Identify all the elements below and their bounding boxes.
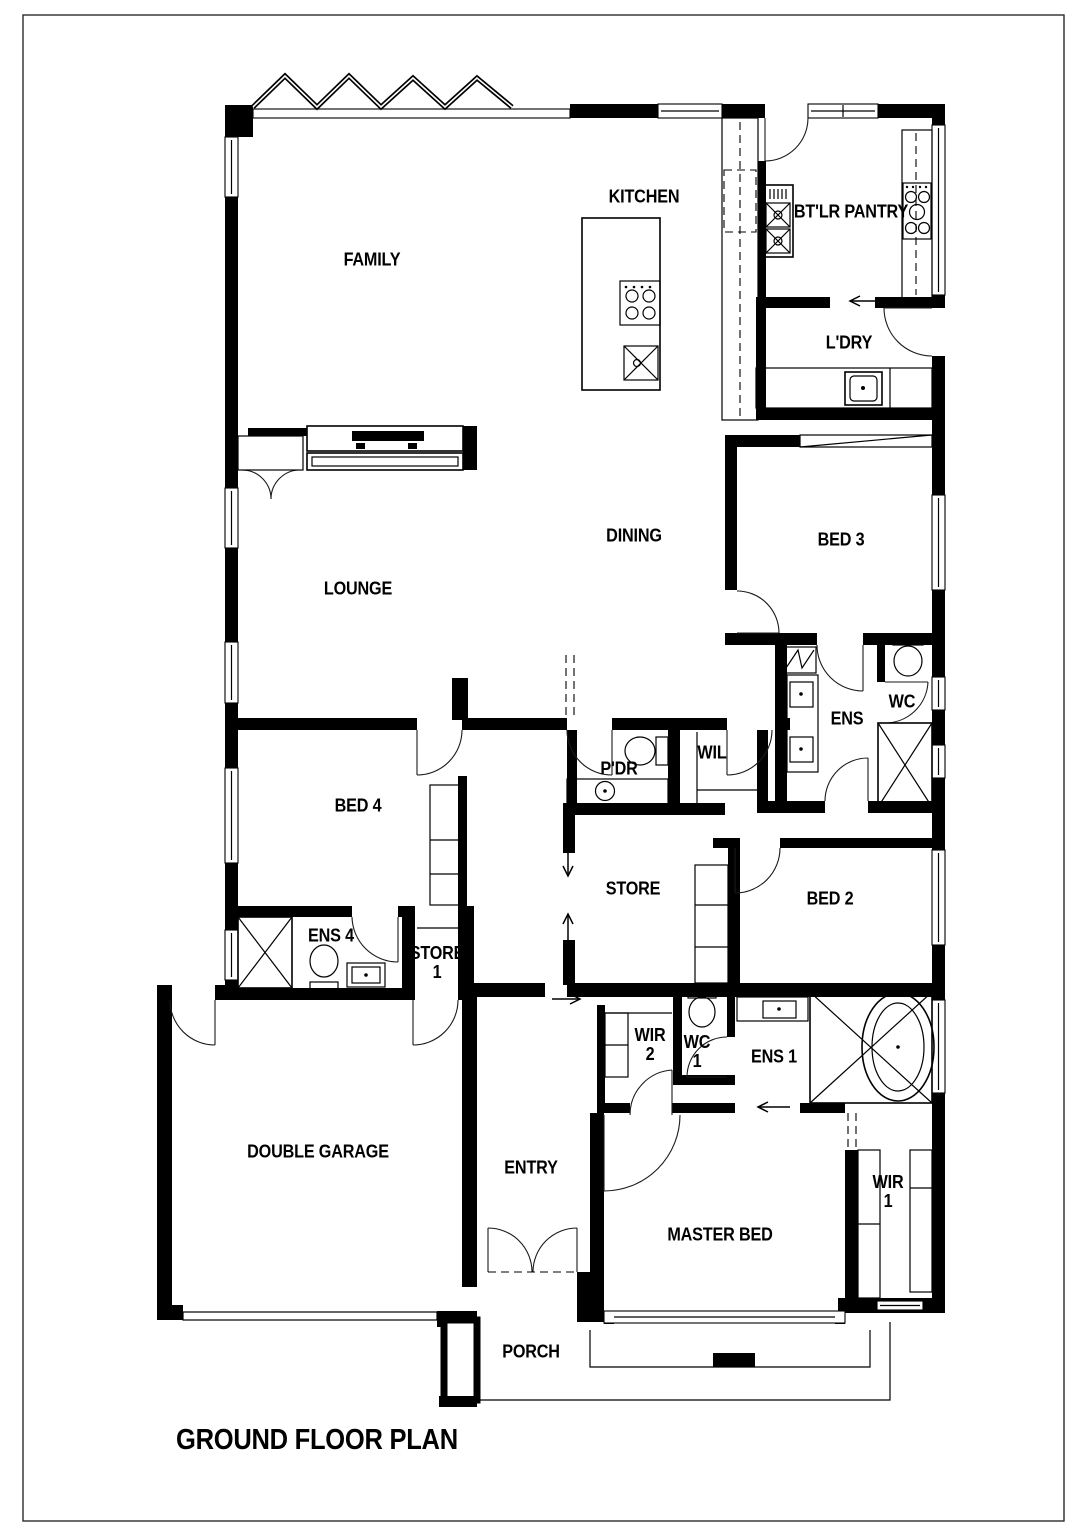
- room-label-store1: STORE 1: [410, 944, 465, 982]
- room-label-store: STORE: [606, 880, 661, 899]
- door-pantry-top: [765, 118, 808, 161]
- ens4-shower-icon: [238, 917, 292, 988]
- room-label-wc1: WC 1: [684, 1033, 711, 1071]
- room-label-wc1-line1: WC: [684, 1033, 711, 1052]
- door-nook-double: [242, 470, 300, 499]
- linen-cupboard: [782, 647, 816, 673]
- room-label-bed2: BED 2: [807, 890, 854, 909]
- room-label-store1-line1: STORE: [410, 944, 465, 963]
- room-label-dining: DINING: [606, 527, 662, 546]
- door-garage-side: [170, 1000, 215, 1045]
- window-left-lounge-1: [225, 488, 238, 548]
- room-label-family: FAMILY: [344, 251, 401, 270]
- room-label-lounge: LOUNGE: [324, 580, 392, 599]
- room-label-double-garage: DOUBLE GARAGE: [247, 1143, 389, 1162]
- room-label-wir2-line1: WIR: [635, 1026, 666, 1045]
- window-right-wc: [932, 677, 945, 710]
- laundry-fixtures: [756, 368, 932, 408]
- room-label-wir1-line2: 1: [873, 1192, 904, 1211]
- floor-plan-page: FAMILY KITCHEN BT'LR PANTRY L'DRY DINING…: [0, 0, 1087, 1536]
- window-left-lounge-2: [225, 642, 238, 703]
- bath-icon: [862, 993, 934, 1101]
- door-bed4: [417, 730, 462, 775]
- bed4-robe: [430, 785, 460, 905]
- door-wir2: [630, 1070, 672, 1115]
- room-label-porch: PORCH: [502, 1343, 560, 1362]
- room-label-ens4: ENS 4: [308, 927, 354, 946]
- floor-plan-svg: [0, 0, 1087, 1536]
- door-entry-double: [488, 1228, 577, 1272]
- room-label-ens1: ENS 1: [751, 1048, 797, 1067]
- room-label-bed4: BED 4: [335, 797, 382, 816]
- ens-shower-icon: [878, 723, 932, 807]
- window-right-ens: [932, 745, 945, 778]
- page-border: [23, 15, 1064, 1521]
- bifold-door-icon: [253, 76, 570, 118]
- window-top-kitchen: [658, 104, 722, 118]
- door-bed2: [735, 848, 780, 893]
- room-label-wc1-line2: 1: [684, 1052, 711, 1071]
- ens4-toilet-icon: [310, 945, 338, 991]
- door-ens4: [352, 917, 398, 962]
- arrow-ens1-left-icon: [758, 1102, 790, 1112]
- window-master-bay: [604, 1311, 845, 1323]
- room-label-powder: P'DR: [600, 760, 637, 779]
- bed2-robe: [695, 865, 728, 983]
- window-right-bed3: [932, 495, 945, 590]
- kitchen-island: [582, 118, 758, 420]
- room-label-store1-line2: 1: [410, 963, 465, 982]
- window-wir1: [877, 1301, 923, 1310]
- door-garage-internal: [413, 1000, 458, 1045]
- plan-title: GROUND FLOOR PLAN: [176, 1424, 458, 1457]
- window-top-pantry: [808, 104, 878, 118]
- room-label-entry: ENTRY: [504, 1159, 557, 1178]
- room-label-butlers-pantry: BT'LR PANTRY: [794, 203, 908, 222]
- door-ens-top: [817, 645, 863, 691]
- ens1-shower-icon: [810, 992, 932, 1103]
- room-label-wir2: WIR 2: [635, 1026, 666, 1064]
- door-master-bed: [604, 1115, 680, 1191]
- ens4-vanity-icon: [347, 963, 385, 987]
- window-left-ens4: [225, 930, 238, 980]
- room-label-wir2-line2: 2: [635, 1045, 666, 1064]
- wc1-ens1-fixtures: [688, 990, 934, 1103]
- room-label-kitchen: KITCHEN: [609, 188, 680, 207]
- window-right-bed2: [932, 850, 945, 945]
- sink-icon: [624, 346, 658, 380]
- room-label-wil: WIL: [697, 744, 726, 763]
- room-label-master-bed: MASTER BED: [667, 1226, 772, 1245]
- room-label-wc: WC: [889, 693, 916, 712]
- door-bed3: [737, 591, 779, 633]
- cooktop-icon: [620, 281, 660, 325]
- room-label-bed3: BED 3: [818, 531, 865, 550]
- laundry-sink-icon: [845, 372, 882, 405]
- room-label-wir1-line1: WIR: [873, 1173, 904, 1192]
- oven-tower-icon: [763, 185, 793, 257]
- room-label-laundry: L'DRY: [826, 334, 872, 353]
- window-left-bed4: [225, 768, 238, 863]
- arrow-store-up-icon: [563, 914, 573, 944]
- room-label-wir1: WIR 1: [873, 1173, 904, 1211]
- window-left-family: [225, 137, 238, 197]
- door-laundry-external: [884, 308, 932, 356]
- bed3-robe: [800, 435, 932, 447]
- window-right-pantry: [932, 125, 945, 295]
- door-ens-bottom: [825, 758, 868, 801]
- room-label-ens: ENS: [831, 710, 864, 729]
